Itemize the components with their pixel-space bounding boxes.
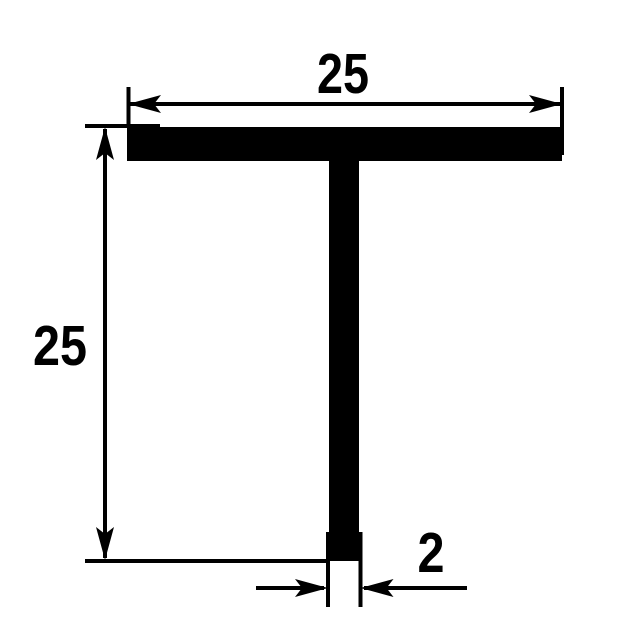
height-dimension-value: 25 [33, 314, 87, 378]
thickness-dimension-value: 2 [418, 521, 445, 585]
profile-stem [329, 161, 359, 561]
t-profile-drawing: 25 25 2 [0, 0, 639, 639]
drawing-canvas: 25 25 2 [0, 0, 639, 639]
width-dimension-value: 25 [317, 42, 369, 106]
profile-flange [127, 127, 562, 161]
